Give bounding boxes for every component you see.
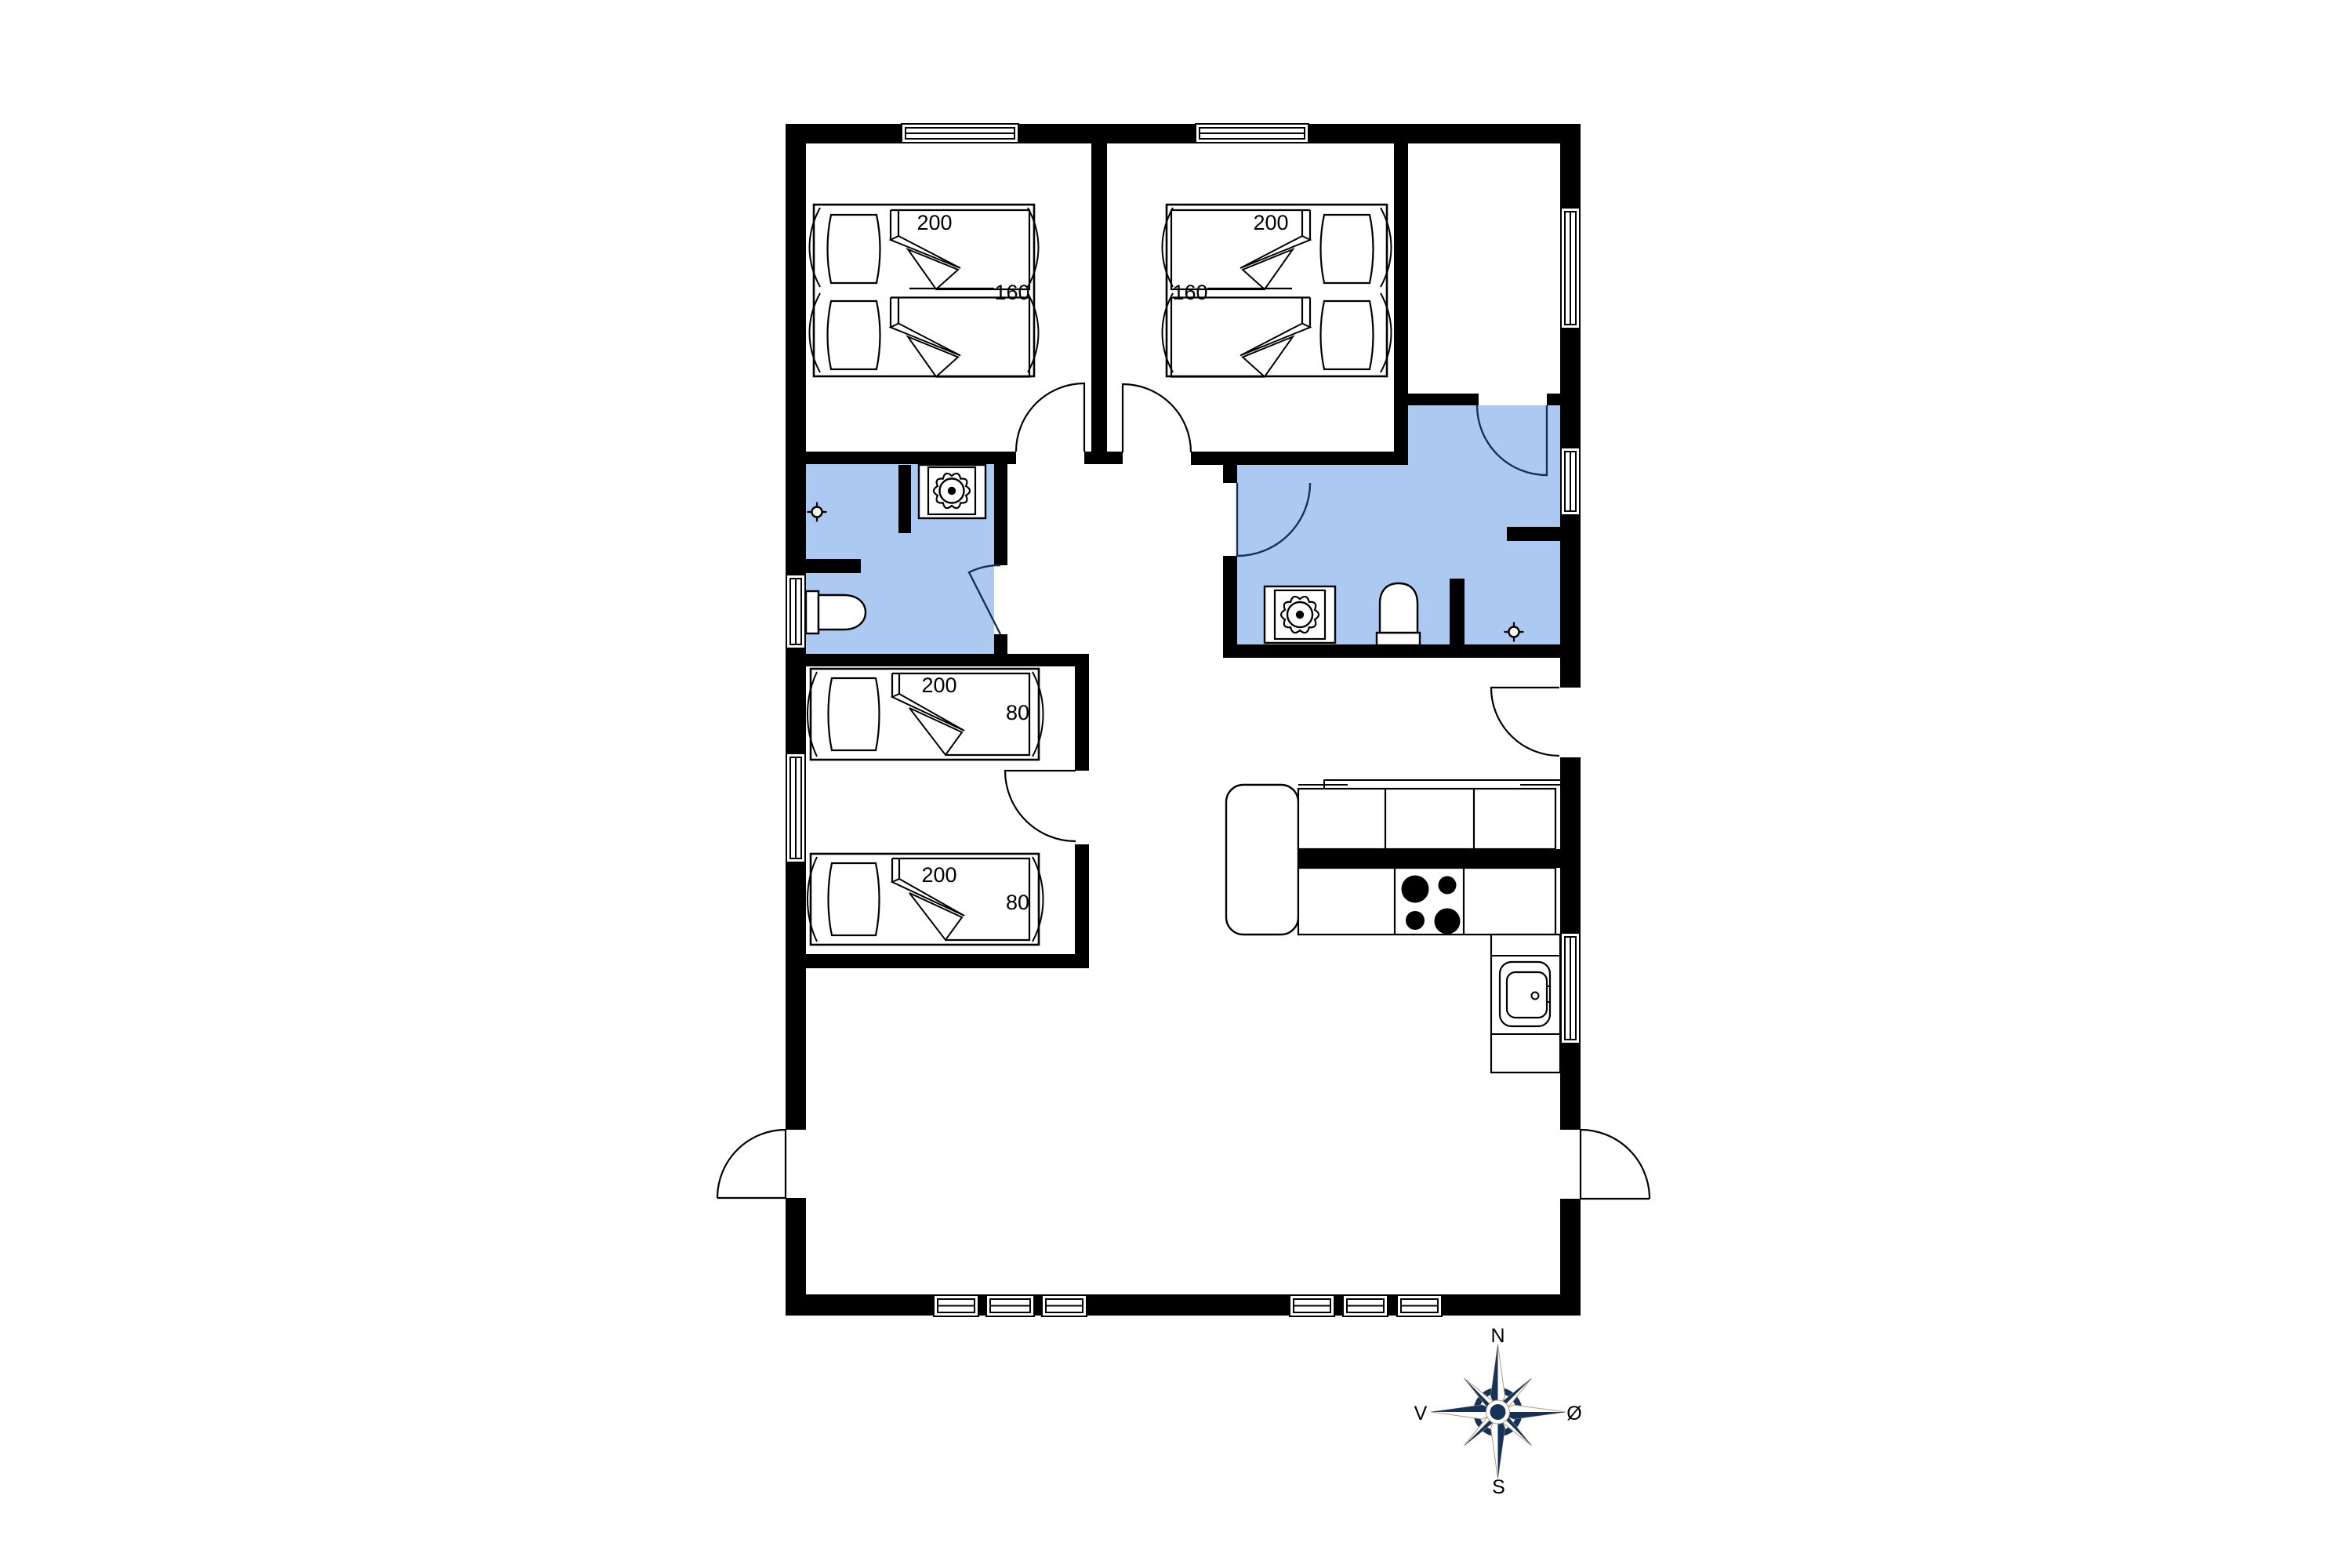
svg-text:S: S (1492, 1476, 1505, 1498)
svg-text:200: 200 (921, 673, 956, 697)
svg-text:200: 200 (921, 863, 956, 887)
svg-text:160: 160 (994, 281, 1029, 304)
svg-text:N: N (1490, 1325, 1504, 1347)
svg-text:160: 160 (1172, 281, 1207, 304)
svg-text:V: V (1414, 1403, 1428, 1425)
svg-text:Ø: Ø (1566, 1403, 1581, 1425)
svg-text:80: 80 (1006, 701, 1029, 724)
svg-text:200: 200 (1253, 211, 1288, 234)
svg-text:200: 200 (916, 211, 952, 234)
svg-text:80: 80 (1006, 891, 1029, 914)
